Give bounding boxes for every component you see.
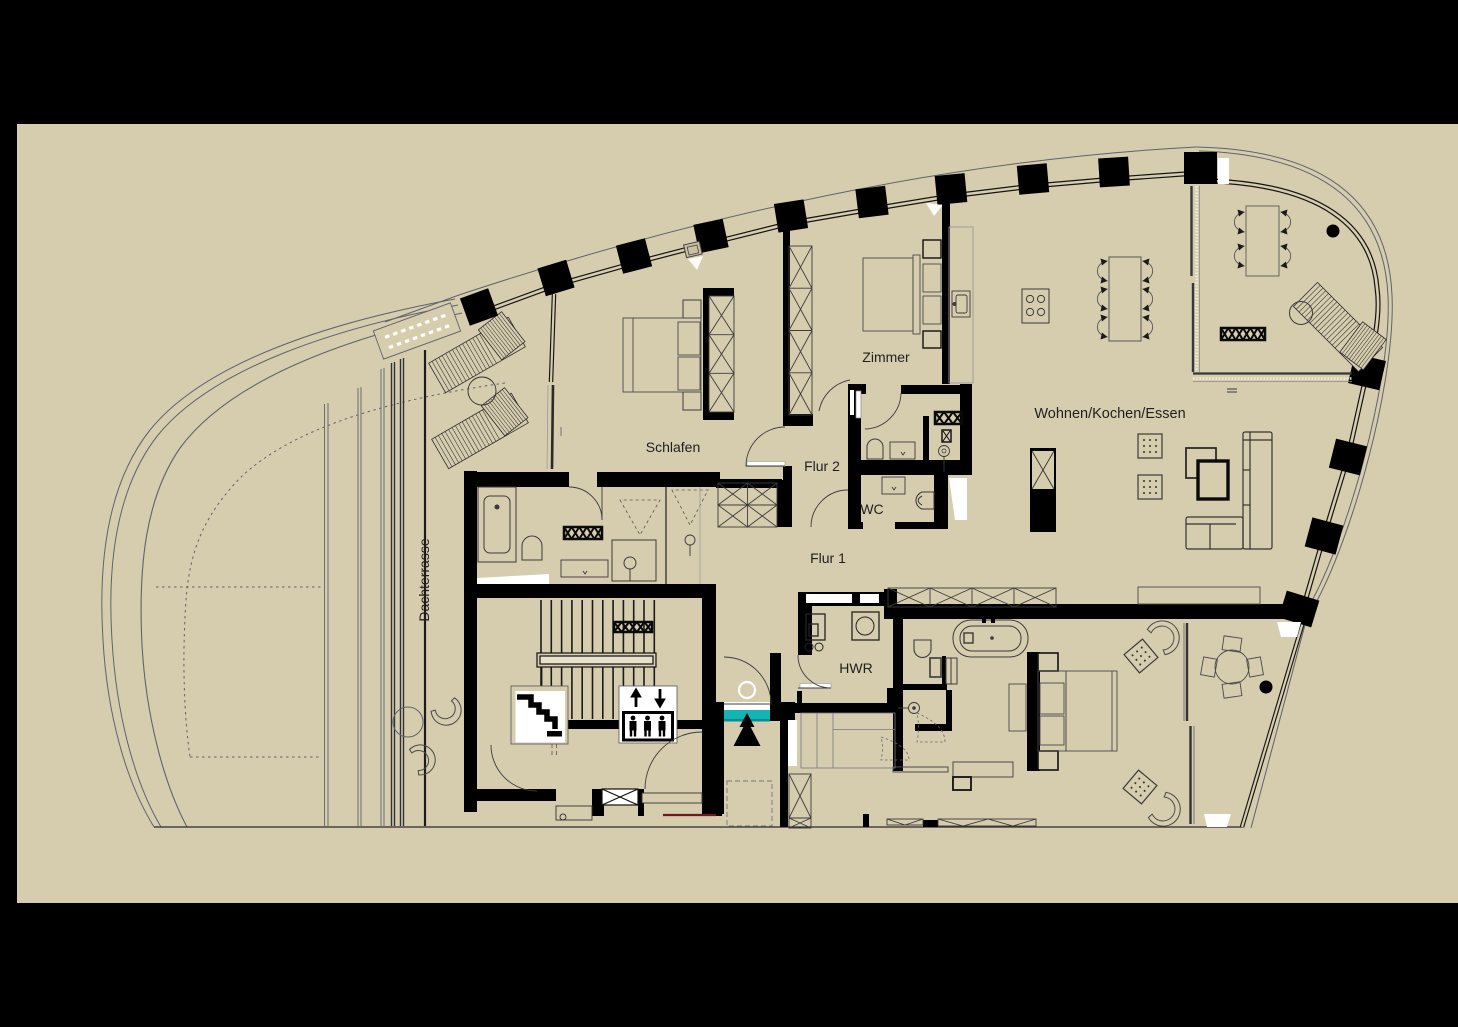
svg-text:WC: WC	[860, 501, 883, 517]
svg-text:Wohnen/Kochen/Essen: Wohnen/Kochen/Essen	[1034, 406, 1185, 422]
svg-text:HWR: HWR	[839, 660, 872, 676]
svg-text:Schlafen: Schlafen	[646, 439, 700, 455]
svg-text:Zimmer: Zimmer	[862, 349, 910, 365]
svg-text:Dachterrasse: Dachterrasse	[416, 538, 432, 621]
svg-text:Flur 2: Flur 2	[804, 458, 840, 474]
svg-text:Flur 1: Flur 1	[810, 550, 846, 566]
